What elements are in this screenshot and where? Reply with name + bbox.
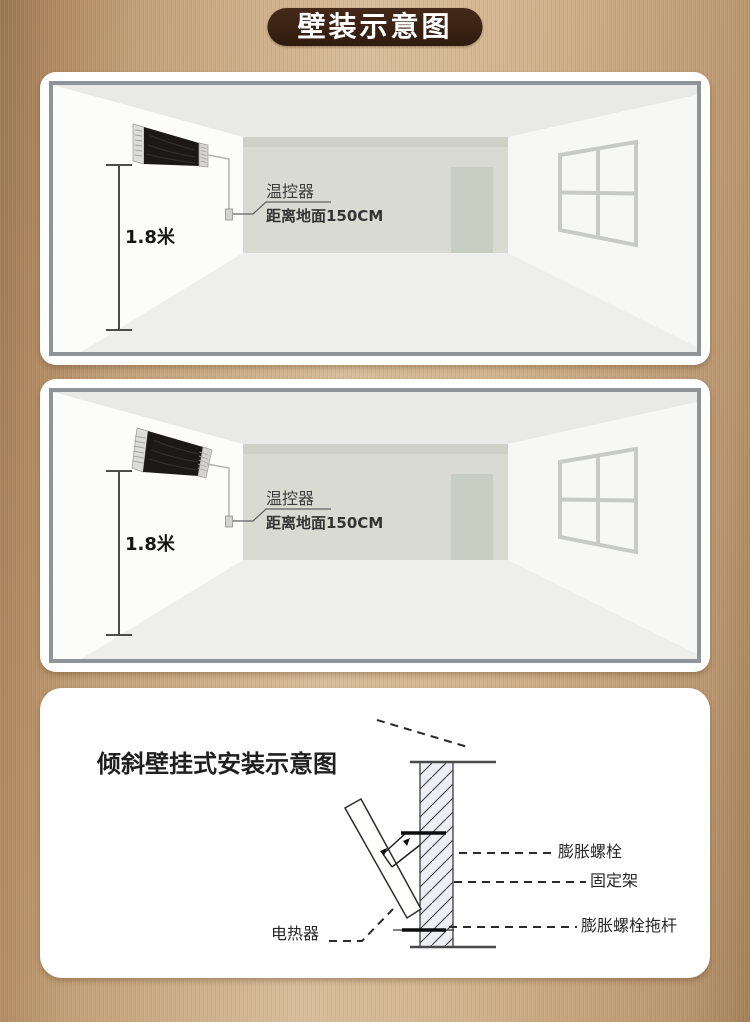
heater-leader (329, 909, 393, 941)
distance-label: 距离地面150CM (266, 514, 383, 532)
thermostat-label: 温控器 (266, 489, 314, 508)
room-svg-2: 1.8米 温控器 距离地面150CM (53, 392, 697, 659)
room-diagram-panel-2: 1.8米 温控器 距离地面150CM (40, 379, 710, 672)
wall-section (410, 762, 496, 947)
bracket-arrow (403, 838, 410, 846)
back-wall-shadow (243, 137, 508, 147)
bolt-rod-label: 膨胀螺栓拖杆 (581, 916, 677, 935)
title-banner: 壁装示意图 (267, 8, 482, 46)
tech-title: 倾斜壁挂式安装示意图 (96, 750, 337, 778)
room-frame-1: 1.8米 温控器 距离地面150CM (49, 81, 701, 356)
heater-label: 电热器 (271, 924, 319, 943)
tech-diagram-panel: 倾斜壁挂式安装示意图 膨胀螺栓 固定 (40, 688, 710, 978)
room-frame-2: 1.8米 温控器 距离地面150CM (49, 388, 701, 663)
thermostat (226, 209, 233, 220)
back-wall-shadow (243, 444, 508, 454)
room-svg-1: 1.8米 温控器 距离地面150CM (53, 85, 697, 352)
heater-slab (345, 799, 421, 918)
ceiling-reference-dash (377, 720, 471, 748)
distance-label: 距离地面150CM (266, 207, 383, 225)
door (451, 167, 493, 253)
room-diagram-panel-1: 1.8米 温控器 距离地面150CM (40, 72, 710, 365)
thermostat-label: 温控器 (266, 182, 314, 201)
page: { "banner": { "label": "壁装示意图" }, "rooms… (0, 0, 750, 1022)
thermostat (226, 516, 233, 527)
height-label: 1.8米 (125, 226, 176, 248)
bracket-label: 固定架 (590, 871, 638, 890)
door (451, 474, 493, 560)
title-banner-label: 壁装示意图 (297, 13, 452, 41)
height-label: 1.8米 (125, 533, 176, 555)
tech-svg: 倾斜壁挂式安装示意图 膨胀螺栓 固定 (40, 688, 710, 978)
expansion-bolt-label: 膨胀螺栓 (558, 842, 622, 861)
